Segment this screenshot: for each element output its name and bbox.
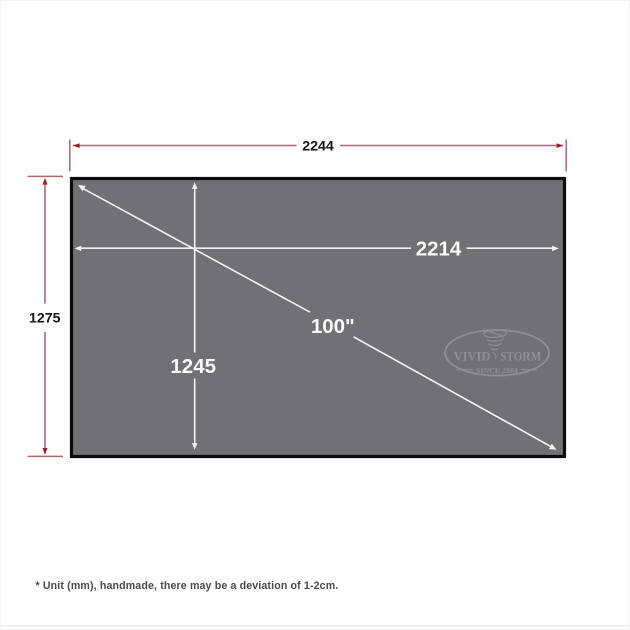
svg-text:* Unit (mm), handmade, there m: * Unit (mm), handmade, there may be a de… [36, 580, 339, 592]
svg-text:100": 100" [311, 315, 355, 338]
svg-text:SINCE 2004: SINCE 2004 [476, 366, 518, 375]
svg-text:2244: 2244 [302, 139, 334, 155]
svg-text:STORM: STORM [500, 349, 541, 363]
svg-text:1245: 1245 [170, 355, 216, 378]
svg-text:2214: 2214 [416, 238, 462, 261]
svg-text:VIVID: VIVID [454, 349, 491, 363]
svg-text:1275: 1275 [29, 311, 61, 327]
